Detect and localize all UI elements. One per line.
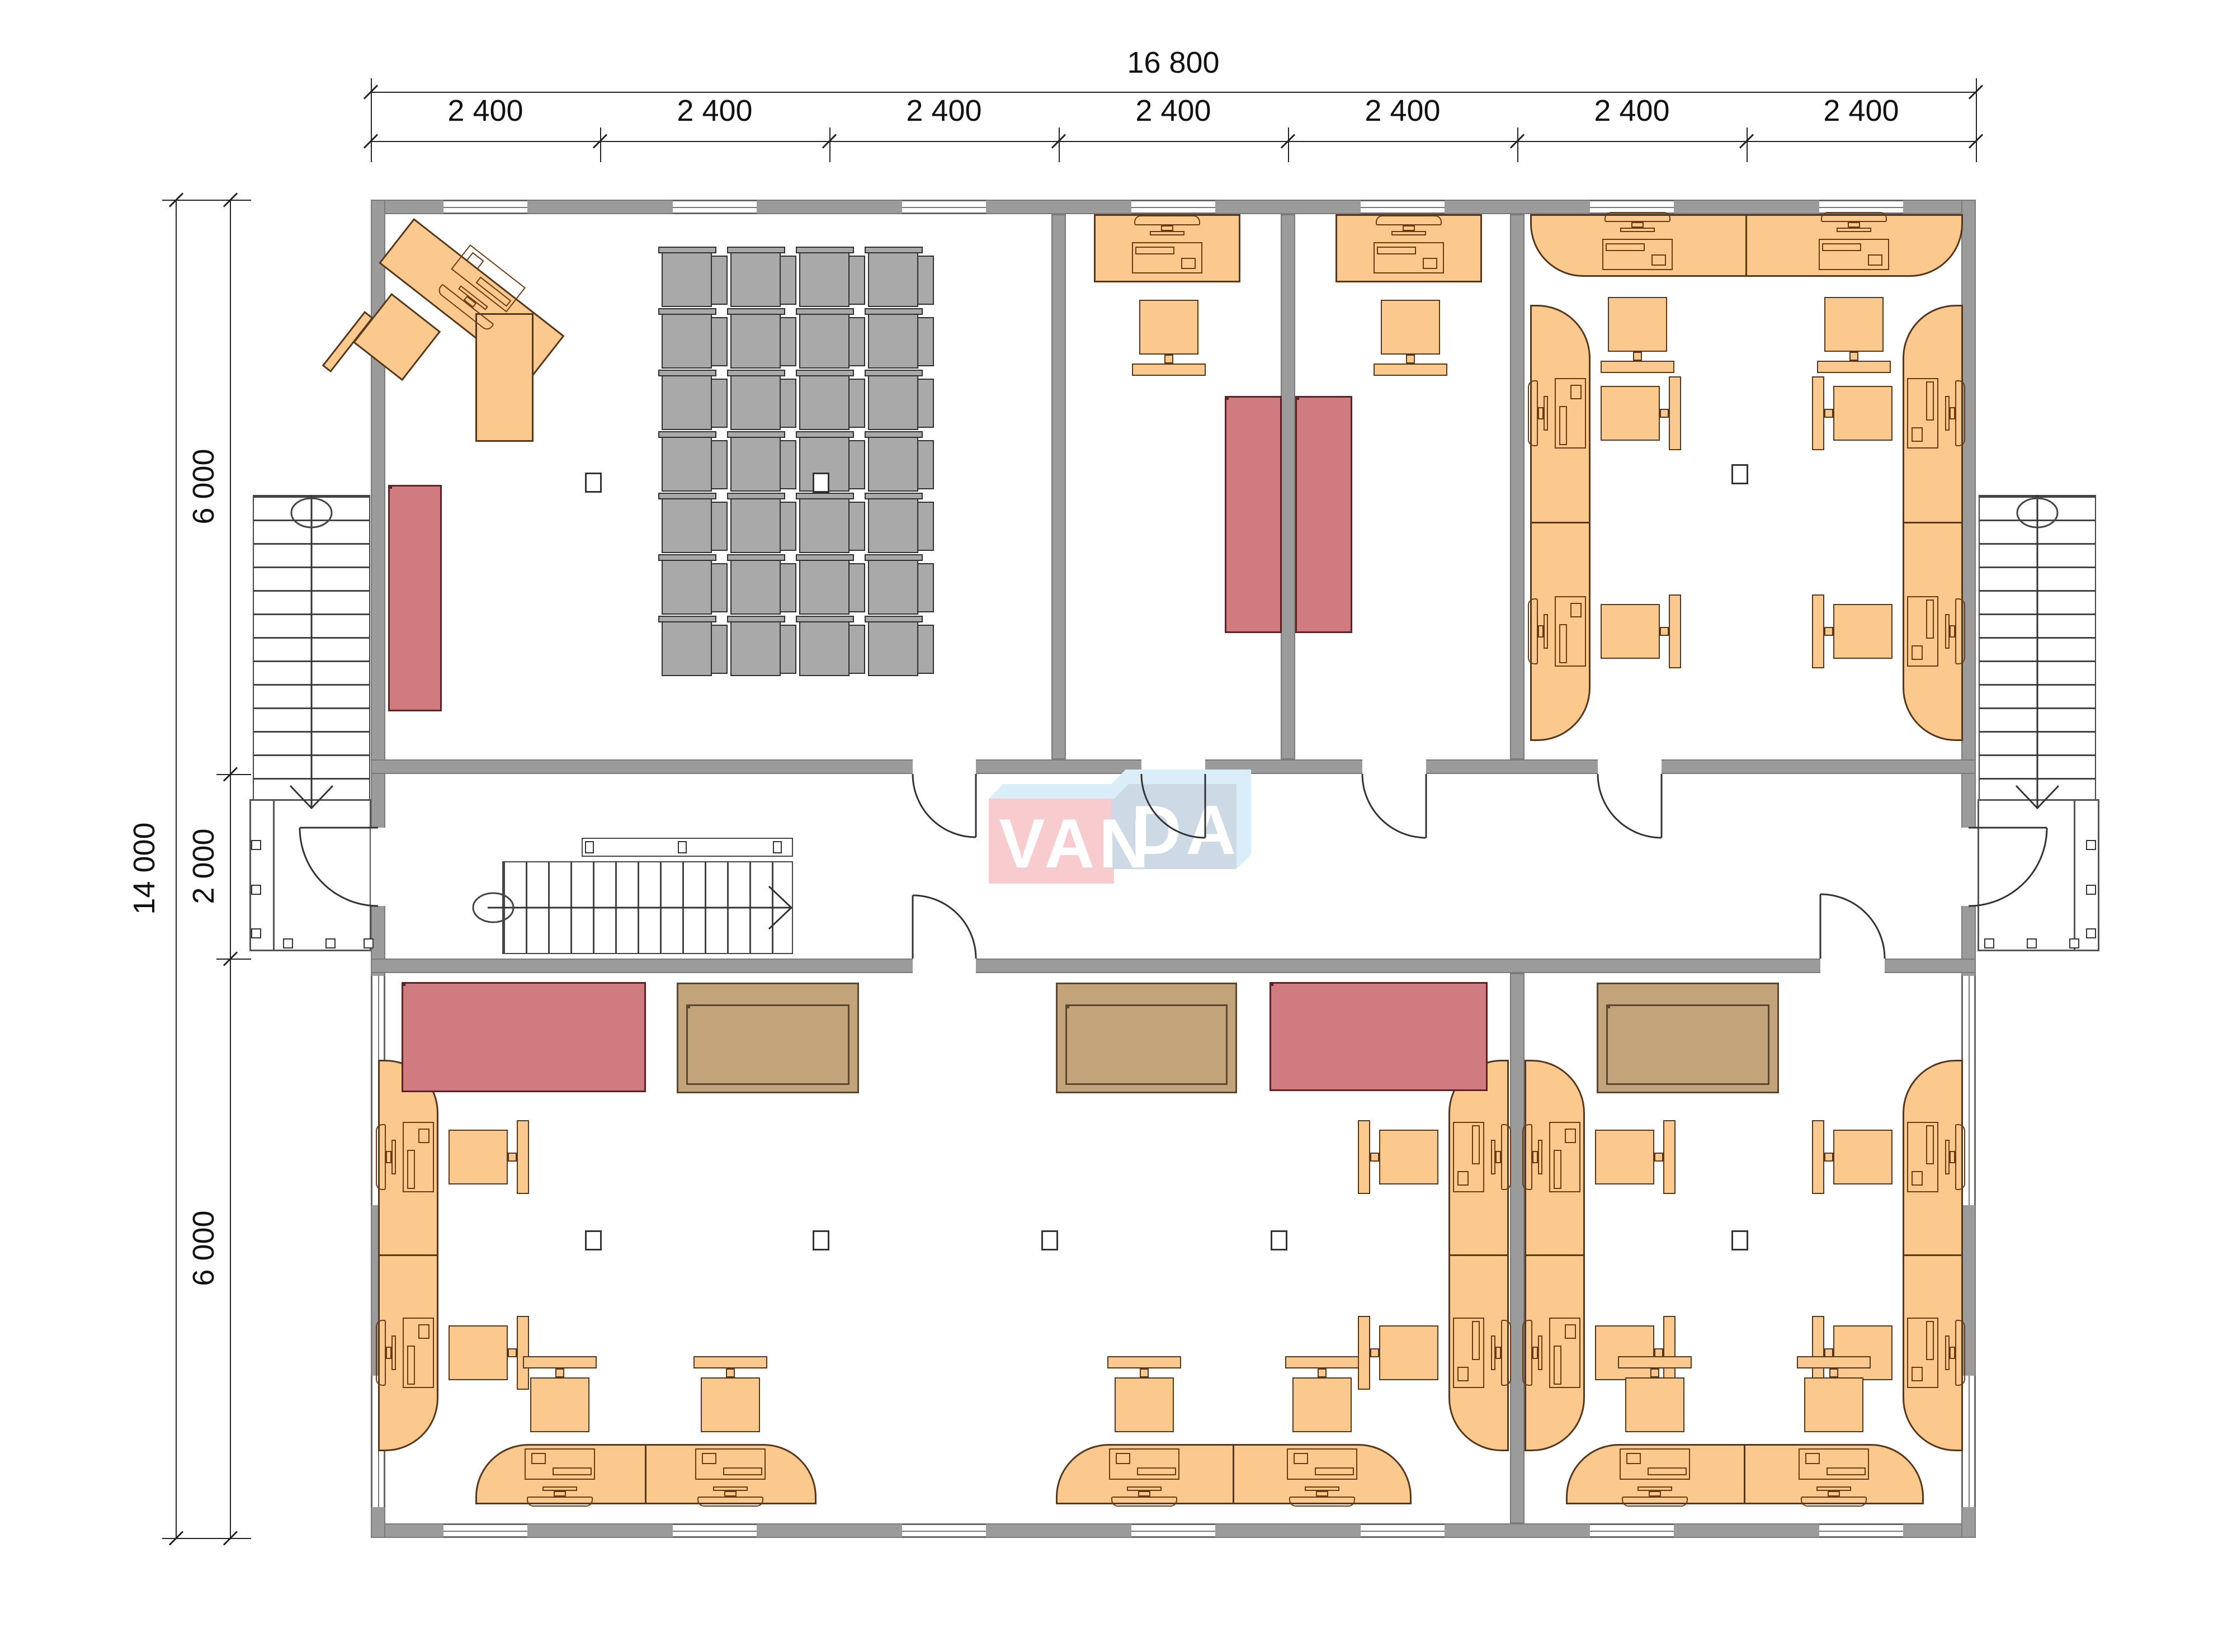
extension-line [1288, 128, 1289, 162]
dim-label-side-seg: 6 000 [186, 1210, 221, 1286]
dim-label-total-height: 14 000 [127, 822, 162, 914]
extension-line [216, 774, 251, 775]
dimension-layer: 16 8002 4002 4002 4002 4002 4002 4002 40… [0, 0, 2237, 1652]
extension-line [1517, 128, 1518, 162]
dim-label-bay: 2 400 [1823, 93, 1899, 128]
dimension-line [230, 200, 231, 1538]
extension-line [216, 959, 251, 960]
dim-label-side-seg: 6 000 [186, 449, 221, 524]
extension-line [600, 128, 601, 162]
dimension-line [371, 141, 1976, 142]
dim-label-bay: 2 400 [677, 93, 752, 128]
extension-line [1747, 128, 1748, 162]
dim-label-side-seg: 2 000 [186, 828, 221, 904]
dimension-line [176, 200, 177, 1538]
extension-line [829, 128, 830, 162]
extension-line [1059, 128, 1060, 162]
dim-label-bay: 2 400 [447, 93, 523, 128]
dim-label-bay: 2 400 [1365, 93, 1440, 128]
dim-label-total-width: 16 800 [1127, 45, 1219, 80]
dimension-line [371, 92, 1976, 93]
floor-plan-canvas: VAN DA 16 8002 4002 4002 4002 4002 4002 … [0, 0, 2237, 1652]
dim-label-bay: 2 400 [1594, 93, 1669, 128]
dim-label-bay: 2 400 [906, 93, 981, 128]
dim-label-bay: 2 400 [1135, 93, 1211, 128]
